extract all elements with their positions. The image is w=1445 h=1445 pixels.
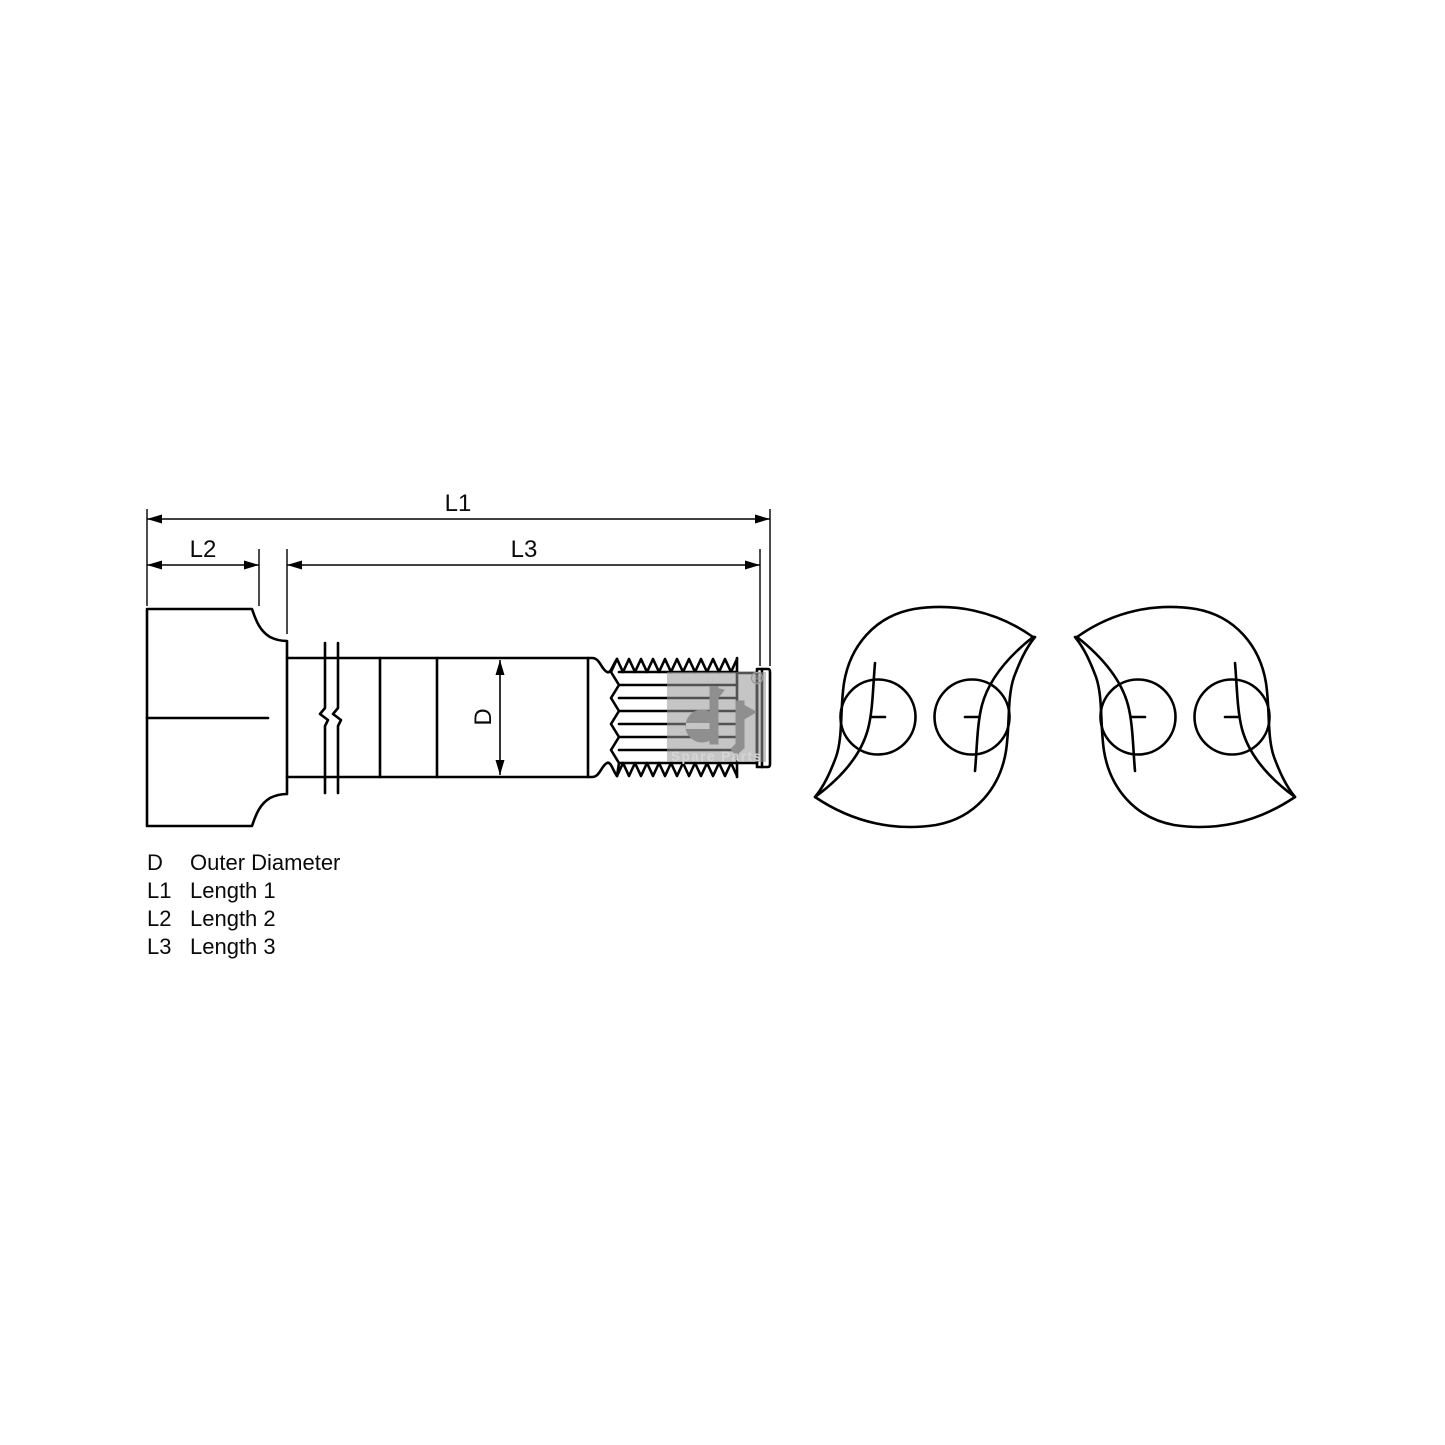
s-cam-profile-right	[1075, 607, 1295, 827]
dimension-d: D	[470, 660, 505, 775]
legend-term: L1	[147, 878, 171, 903]
dt-spare-parts-watermark: ® Spare Parts	[667, 672, 766, 764]
dimension-label-d: D	[470, 708, 497, 725]
legend-term: L2	[147, 906, 171, 931]
dimension-l1: L1	[147, 490, 770, 524]
legend-term: L3	[147, 934, 171, 959]
dimension-label-l3: L3	[511, 536, 538, 563]
legend-term: D	[147, 850, 163, 875]
legend-desc: Length 3	[190, 934, 276, 959]
shaft-top-line	[287, 658, 617, 672]
dimension-label-l2: L2	[190, 536, 217, 563]
shaft-bottom-line	[287, 763, 617, 777]
legend: D Outer Diameter L1 Length 1 L2 Length 2…	[147, 850, 340, 959]
technical-drawing-canvas: L1 L2 L3 D	[0, 0, 1445, 1445]
break-line-left	[320, 643, 328, 793]
break-line-right	[333, 643, 341, 793]
dimension-label-l1: L1	[445, 490, 472, 517]
watermark-tagline: Spare Parts	[671, 749, 763, 764]
s-cam-profile-left	[815, 607, 1035, 827]
dimension-l3: L3	[287, 536, 760, 570]
legend-desc: Length 1	[190, 878, 276, 903]
legend-desc: Outer Diameter	[190, 850, 340, 875]
dimension-l2: L2	[147, 536, 259, 570]
registered-trademark-symbol: ®	[754, 674, 761, 684]
legend-desc: Length 2	[190, 906, 276, 931]
